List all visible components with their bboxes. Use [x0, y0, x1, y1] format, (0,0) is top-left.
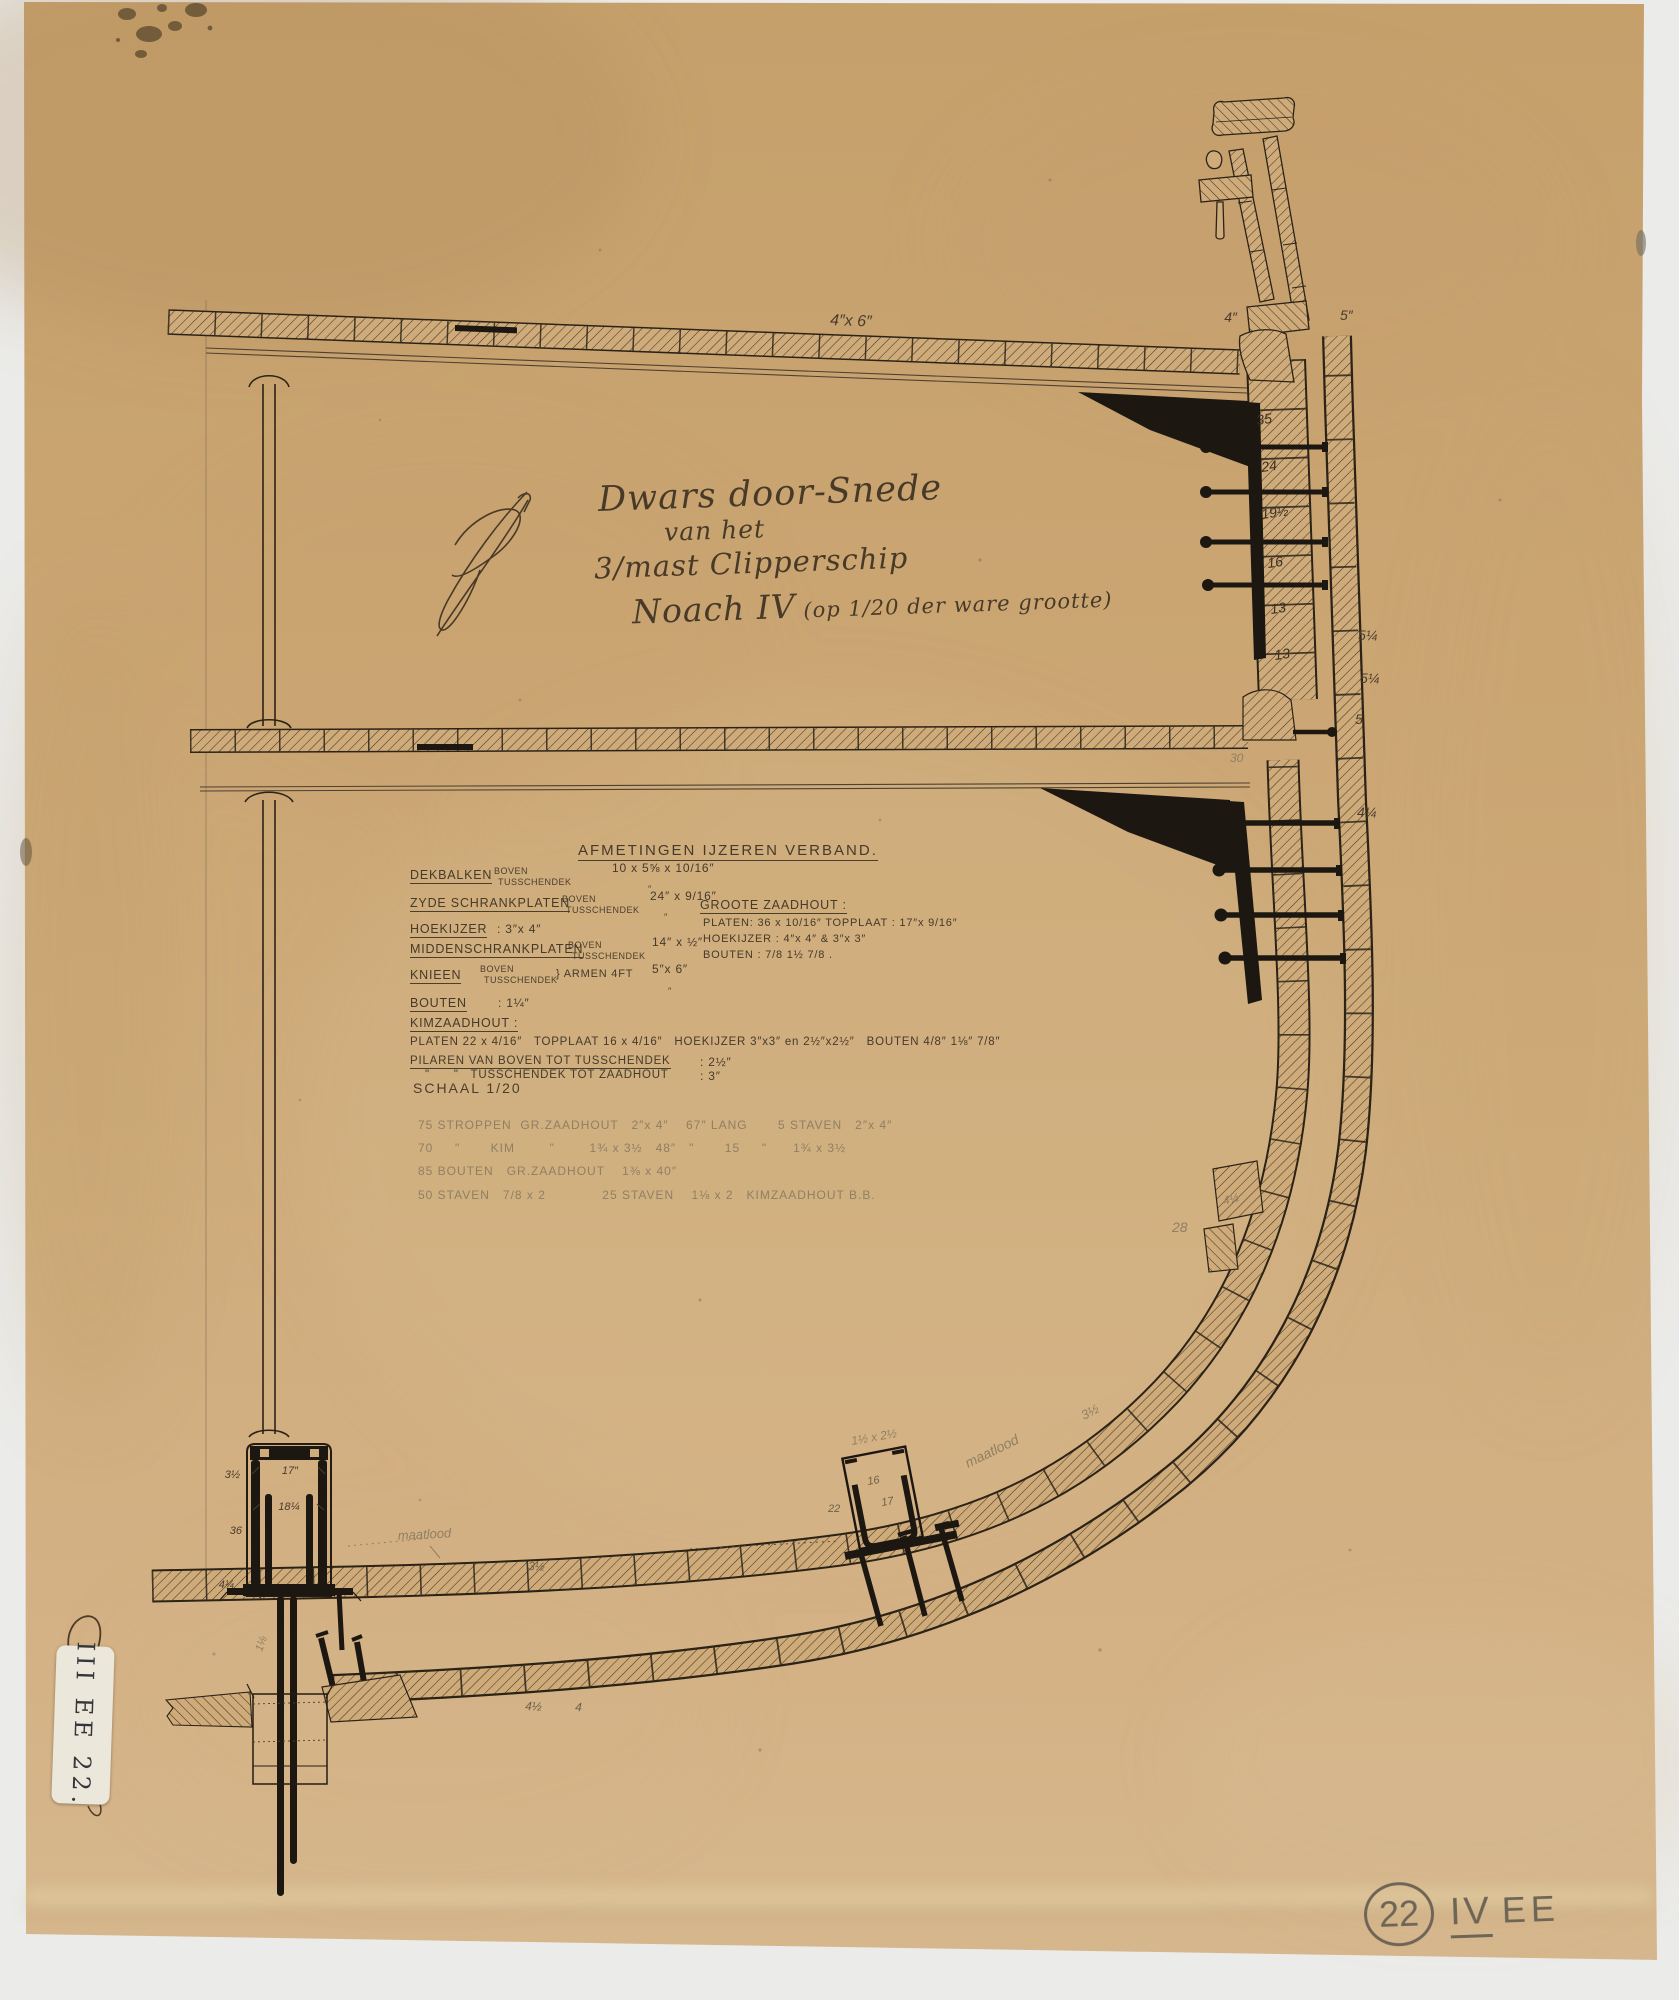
label-frame-5: 13	[1269, 599, 1287, 617]
row-value: 10 x 5⅝ x 10/16″	[612, 861, 714, 875]
label-shell-2: 5¼	[1360, 670, 1380, 686]
label-deck-edge-in: 4″	[1224, 309, 1238, 325]
ditto-mark: ″	[668, 986, 672, 996]
archive-sticker: III EE 22.	[51, 1645, 114, 1805]
scale-note: SCHAAL 1/20	[413, 1080, 522, 1096]
stamp-number: 22	[1363, 1881, 1435, 1947]
label-keelson-base: 4¼	[219, 1579, 234, 1591]
archive-sticker-label: III EE 22.	[66, 1641, 100, 1809]
belaying-pin-shaft	[1216, 202, 1224, 239]
row-label: KNIEEN	[410, 968, 461, 984]
table-heading: AFMETINGEN IJZEREN VERBAND.	[578, 842, 878, 861]
label-frame-1: 35	[1255, 410, 1273, 428]
label-shell-3: 5	[1355, 711, 1363, 727]
label-deck-planks: 4″x 6″	[830, 312, 873, 330]
row-label: PILAREN VAN BOVEN TOT TUSSCHENDEK	[410, 1055, 671, 1069]
label-keelson-top: 17″	[282, 1465, 299, 1477]
scanned-drawing-sheet: 4″x 6″ 4″ 5″ 35 24 19½ 16 13 13 5¼ 5¼ 5 …	[0, 0, 1679, 2000]
label-floor-inner: 3½	[528, 1559, 545, 1574]
edge-stain-left	[20, 838, 32, 866]
material-list-line: 70 " KIM " 1¾ x 3½ 48″ " 15 " 1¾ x 3½	[418, 1141, 846, 1155]
row-value: : 1¼″	[498, 996, 530, 1010]
label-keelson-height: 36	[230, 1525, 243, 1537]
row-value: PLATEN 22 x 4/16″ TOPPLAAT 16 x 4/16″ HO…	[410, 1036, 1000, 1048]
row-label: ZYDE SCHRANKPLATEN	[410, 896, 570, 912]
groote-heading: GROOTE ZAADHOUT :	[700, 898, 847, 914]
row-value: : 3″x 4″	[497, 922, 541, 936]
ditto-mark: ″	[664, 912, 668, 922]
material-list-line: 85 BOUTEN GR.ZAADHOUT 1⅜ x 40″	[418, 1164, 677, 1178]
label-bilge-pencil: 28	[1171, 1219, 1188, 1235]
deck-iron-strip	[417, 744, 473, 750]
label-deck-edge-out: 5″	[1340, 307, 1354, 323]
row-sub: BOVEN	[562, 894, 596, 904]
row-label: HOEKIJZER	[410, 922, 487, 938]
label-frame-2: 24	[1259, 457, 1278, 475]
ship-name: Noach IV	[631, 587, 796, 632]
groote-line: BOUTEN : 7/8 1½ 7/8 .	[703, 949, 833, 961]
label-shell-1: 5¼	[1358, 627, 1378, 643]
groote-line: HOEKIJZER : 4″x 4″ & 3″x 3″	[703, 933, 866, 945]
row-label: MIDDENSCHRANKPLATEN	[410, 942, 583, 958]
waterway-timber	[1239, 330, 1294, 382]
label-frame-6: 13	[1273, 645, 1291, 663]
material-list-line: 50 STAVEN 7/8 x 2 25 STAVEN 1⅛ x 2 KIMZA…	[418, 1188, 876, 1202]
row-sub: TUSSCHENDEK	[484, 975, 558, 985]
row-sub: TUSSCHENDEK	[498, 877, 572, 887]
row-value: 5″x 6″	[652, 962, 688, 976]
row-sub: TUSSCHENDEK	[566, 905, 640, 915]
edge-stain-right	[1636, 230, 1646, 256]
row-value: : 3″	[700, 1069, 721, 1083]
label-frame-4: 16	[1266, 553, 1284, 571]
row-sub: TUSSCHENDEK	[572, 951, 646, 961]
label-shell-4: 4¼	[1357, 804, 1377, 820]
row-value: : 2½″	[700, 1055, 732, 1069]
row-value: 14″ x ½″	[652, 935, 703, 949]
stamp-numeral: IV	[1449, 1889, 1493, 1937]
archive-stamp: 22IVEE	[1363, 1877, 1561, 1948]
row-label: BOUTEN	[410, 996, 467, 1012]
stamp-letters: EE	[1501, 1888, 1560, 1931]
row-brace: } ARMEN 4FT	[556, 968, 633, 980]
label-tween-width: 30	[1230, 751, 1244, 765]
label-floor-outer-a: 4½	[525, 1699, 542, 1714]
pin-rail	[1199, 175, 1253, 202]
rail-cap	[1212, 98, 1294, 136]
label-keelson-side: 3½	[225, 1469, 240, 1481]
ship-cross-section-drawing: 4″x 6″ 4″ 5″ 35 24 19½ 16 13 13 5¼ 5¼ 5 …	[0, 0, 1679, 2000]
title-line-2: van het	[664, 514, 766, 547]
label-keelson-maatlood: maatlood	[397, 1525, 452, 1543]
label-keelson-inner: 18¼	[278, 1501, 299, 1513]
row-sub: BOVEN	[568, 940, 602, 950]
row-label: KIMZAADHOUT :	[410, 1016, 518, 1032]
row-sub: BOVEN	[480, 964, 514, 974]
row-sub: BOVEN	[494, 866, 528, 876]
belaying-pin	[1206, 151, 1221, 169]
label-floor-outer-b: 4	[575, 1700, 582, 1714]
label-kim-height: 22	[827, 1503, 840, 1515]
material-list-line: 75 STROPPEN GR.ZAADHOUT 2″x 4″ 67″ LANG …	[418, 1118, 892, 1132]
groote-line: PLATEN: 36 x 10/16″ TOPPLAAT : 17″x 9/16…	[703, 917, 957, 929]
row-label: DEKBALKEN	[410, 868, 492, 884]
